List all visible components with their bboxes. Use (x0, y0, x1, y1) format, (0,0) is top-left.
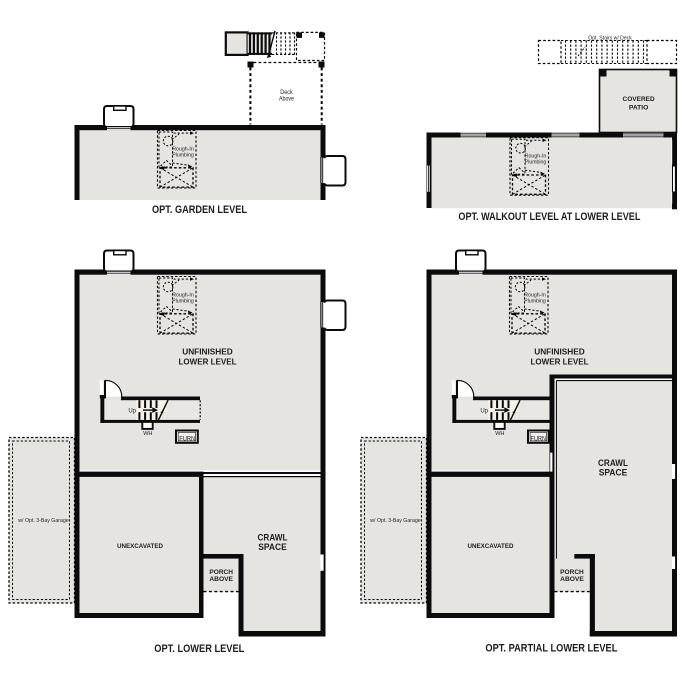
svg-text:UNEXCAVATED: UNEXCAVATED (468, 543, 514, 550)
svg-text:LOWER LEVEL: LOWER LEVEL (179, 358, 237, 367)
svg-text:Deck: Deck (280, 90, 293, 96)
svg-text:ABOVE: ABOVE (209, 576, 233, 583)
svg-text:PATIO: PATIO (629, 105, 648, 112)
svg-text:UNFINISHED: UNFINISHED (182, 348, 233, 357)
svg-text:WH: WH (495, 431, 504, 437)
svg-text:FURN: FURN (179, 437, 195, 443)
svg-text:CRAWL: CRAWL (258, 532, 289, 542)
svg-text:PORCH: PORCH (560, 569, 584, 576)
svg-text:w/ Opt. 3-Bay Garage: w/ Opt. 3-Bay Garage (369, 518, 420, 524)
svg-text:FURN: FURN (531, 437, 547, 443)
svg-text:SPACE: SPACE (599, 468, 628, 478)
svg-text:COVERED: COVERED (623, 96, 655, 103)
svg-text:PORCH: PORCH (209, 569, 233, 576)
svg-text:OPT. LOWER LEVEL: OPT. LOWER LEVEL (154, 643, 244, 655)
svg-text:ABOVE: ABOVE (560, 576, 584, 583)
svg-text:SPACE: SPACE (258, 542, 287, 552)
svg-text:UNFINISHED: UNFINISHED (534, 348, 585, 357)
svg-text:WH: WH (143, 431, 152, 437)
svg-text:OPT. WALKOUT LEVEL AT LOWER LE: OPT. WALKOUT LEVEL AT LOWER LEVEL (458, 211, 640, 223)
svg-text:UNEXCAVATED: UNEXCAVATED (117, 543, 163, 550)
svg-text:w/ Opt. 3-Bay Garage: w/ Opt. 3-Bay Garage (17, 518, 68, 524)
svg-text:LOWER LEVEL: LOWER LEVEL (531, 358, 589, 367)
svg-text:CRAWL: CRAWL (598, 458, 629, 468)
svg-text:Up: Up (128, 409, 136, 415)
svg-text:Above: Above (279, 97, 295, 103)
svg-text:OPT. PARTIAL LOWER LEVEL: OPT. PARTIAL LOWER LEVEL (485, 642, 617, 654)
svg-text:OPT. GARDEN LEVEL: OPT. GARDEN LEVEL (152, 204, 247, 216)
